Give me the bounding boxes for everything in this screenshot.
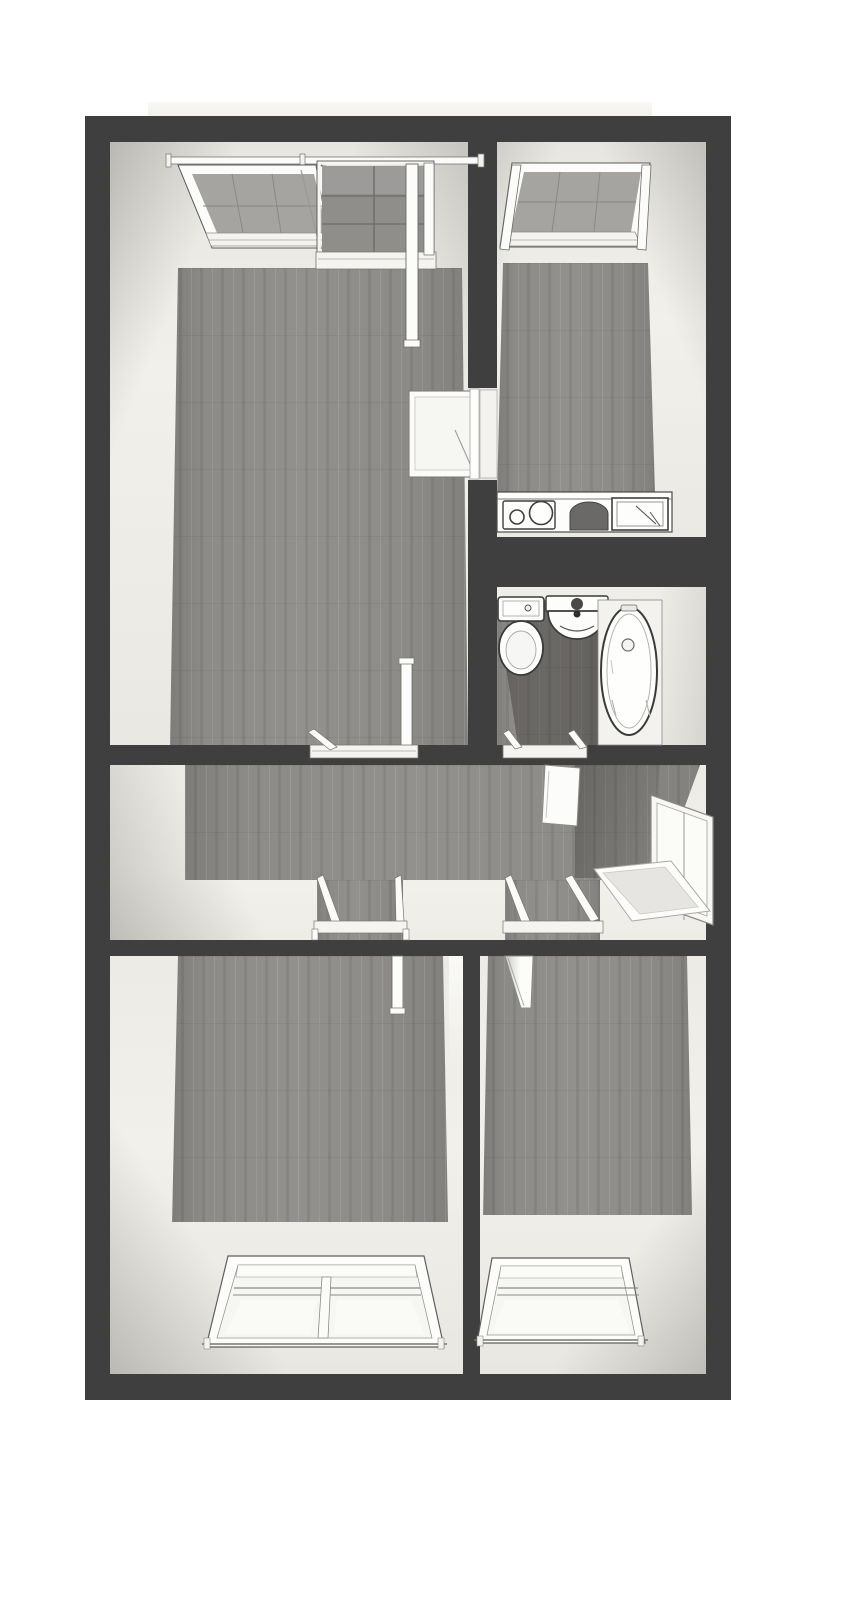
bathroom-door (503, 730, 587, 826)
bedroom-right-door-open-leaf (505, 956, 533, 1008)
cooktop (503, 501, 555, 529)
fixtures-layer (0, 0, 867, 1600)
balcony-door (316, 161, 436, 347)
living-hall-door (308, 658, 418, 758)
bathroom-fixtures (498, 596, 662, 826)
bedroom-left-door-open-leaf (392, 956, 403, 1011)
living-window (178, 165, 341, 251)
entrance (594, 795, 713, 925)
bedroom-left-doorway (312, 875, 409, 1014)
kitchen-counter (497, 492, 672, 532)
bedroom-right-doorway (503, 875, 603, 1008)
floor-plan-canvas (0, 0, 867, 1600)
kitchen-sink (570, 498, 668, 530)
bedroom-right-window (474, 1258, 648, 1346)
living-hall-door-open-leaf (401, 662, 412, 746)
toilet (498, 597, 544, 675)
balcony-door-open-leaf (406, 164, 418, 342)
kitchen-window (500, 163, 651, 250)
bathtub (598, 600, 662, 745)
bedroom-left-window (202, 1256, 447, 1349)
kitchen-door (409, 388, 497, 480)
